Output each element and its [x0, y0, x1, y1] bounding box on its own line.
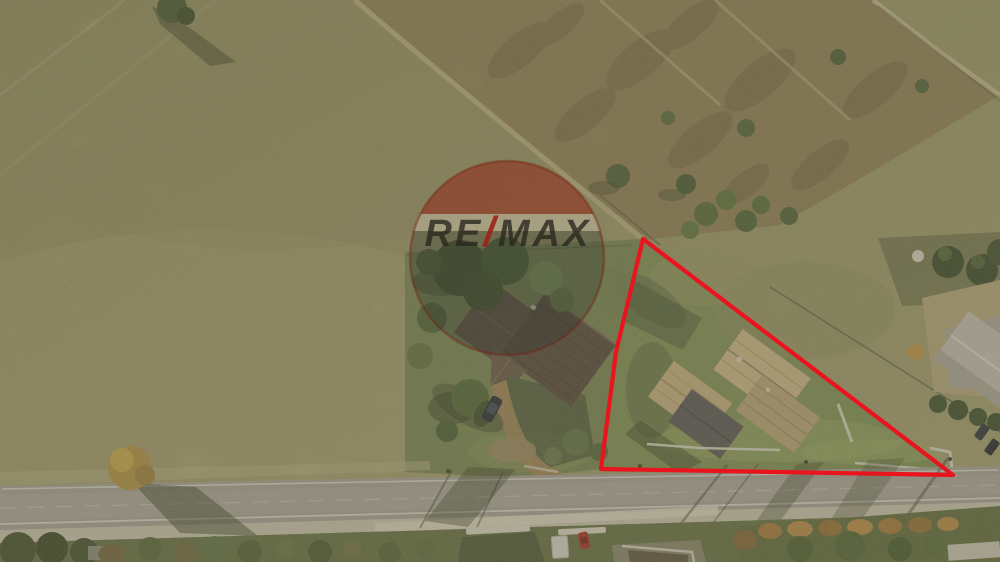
aerial-property-photo: RE/MAX [0, 0, 1000, 562]
watermark-slash: / [481, 208, 499, 255]
watermark-text: RE/MAX [425, 208, 592, 255]
watermark-max: MAX [498, 213, 591, 255]
aerial-photo-canvas: RE/MAX [0, 0, 1000, 562]
watermark-re: RE [425, 213, 484, 255]
